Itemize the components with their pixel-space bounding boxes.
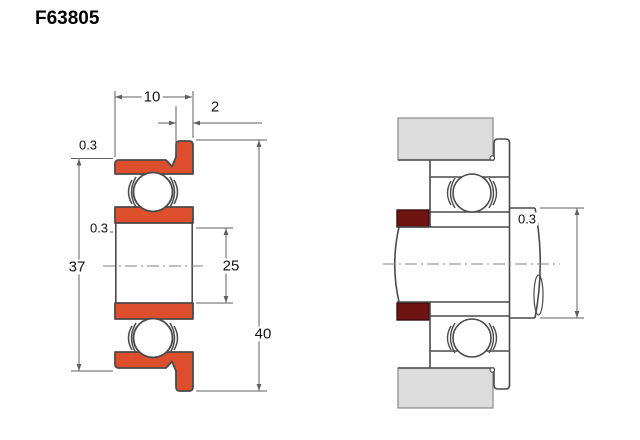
dim-bore-diameter-label: 25 xyxy=(221,259,242,274)
shaft-spacer-top xyxy=(397,210,429,227)
housing-block-top xyxy=(398,118,493,160)
dim-width-label: 10 xyxy=(142,90,163,105)
ball-top-right-view xyxy=(453,174,491,212)
left-view-cross-section xyxy=(71,91,267,391)
inner-ring-bottom xyxy=(115,303,193,319)
bearing-drawing-page: F63805 xyxy=(0,0,640,440)
ball-top xyxy=(134,173,173,212)
ball-bottom xyxy=(134,319,173,358)
dim-chamfer-bore-label: 0.3 xyxy=(88,222,110,235)
dim-flange-width-label: 2 xyxy=(209,100,221,115)
ball-bottom-right-view xyxy=(453,319,491,357)
dim-flange-diameter-label: 40 xyxy=(253,327,274,342)
right-view-mounting xyxy=(383,118,584,408)
chamfer-detail-bottom xyxy=(490,368,494,372)
outer-ring-top-with-flange xyxy=(115,141,193,174)
dim-outer-diameter-label: 37 xyxy=(67,260,88,275)
dim-fillet-radius-label: 0.3 xyxy=(516,213,538,226)
chamfer-detail-top xyxy=(490,156,494,160)
housing-block-bottom xyxy=(398,368,493,408)
shaft-spacer-bottom xyxy=(397,303,429,320)
dimension-lines-right xyxy=(540,208,584,318)
dim-chamfer-outer-label: 0.3 xyxy=(77,139,99,152)
